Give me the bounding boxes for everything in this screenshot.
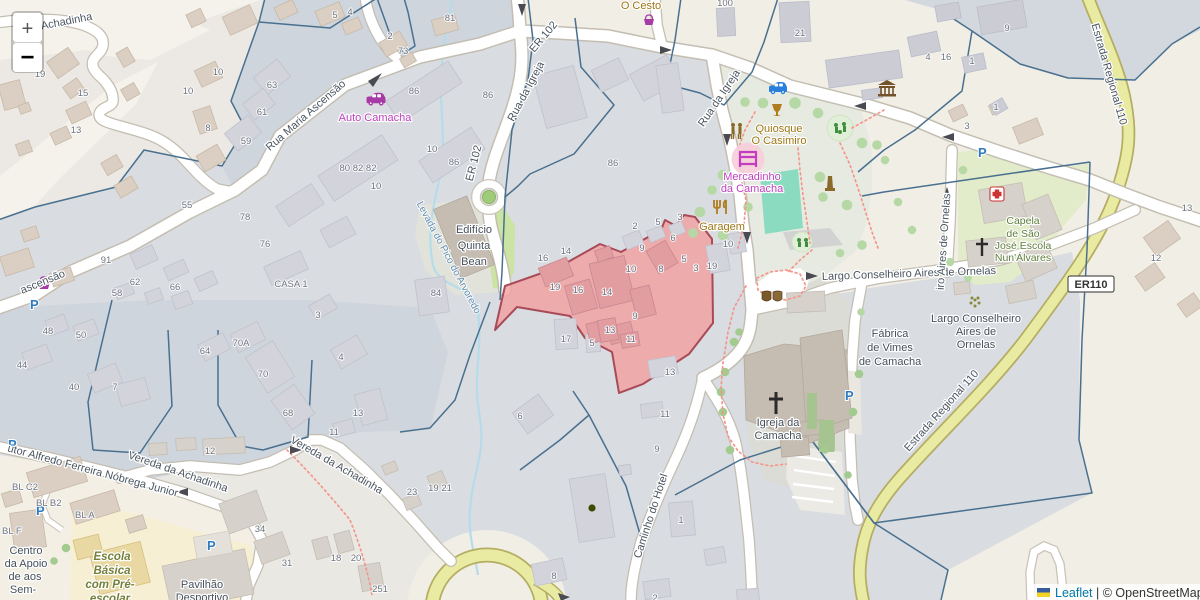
svg-text:76: 76 [260,239,271,250]
svg-text:3: 3 [677,212,682,223]
svg-text:com Pré-: com Pré- [85,579,134,591]
svg-text:8: 8 [551,571,556,582]
svg-text:P: P [978,145,987,160]
svg-text:70: 70 [258,369,269,380]
svg-text:BL B2: BL B2 [36,498,62,509]
svg-text:59: 59 [241,136,252,147]
svg-text:BL F: BL F [2,526,22,537]
svg-text:de São: de São [1006,228,1039,240]
svg-text:Leaflet: Leaflet [1055,586,1093,600]
svg-text:5: 5 [681,254,686,265]
svg-text:86: 86 [449,157,460,168]
svg-text:86: 86 [608,158,619,169]
svg-text:4: 4 [338,352,343,363]
svg-text:10: 10 [626,264,637,275]
svg-text:17: 17 [561,334,572,345]
svg-text:escolar: escolar [90,593,131,600]
svg-text:da Camacha: da Camacha [721,183,784,195]
svg-text:16: 16 [941,52,952,63]
svg-text:70A: 70A [233,338,251,349]
svg-text:O Casimiro: O Casimiro [751,135,806,147]
svg-text:18: 18 [331,553,342,564]
svg-text:ER110: ER110 [1074,279,1107,291]
svg-text:81: 81 [445,13,456,24]
svg-text:34: 34 [255,524,266,535]
svg-text:Fábrica: Fábrica [872,328,910,340]
svg-text:Nun'Álvares: Nun'Álvares [995,251,1051,264]
svg-text:15: 15 [78,88,89,99]
svg-text:Básica: Básica [93,565,131,577]
svg-text:Capela: Capela [1006,215,1039,227]
svg-text:5: 5 [589,338,594,349]
svg-text:11: 11 [660,409,670,420]
svg-text:1: 1 [993,102,998,113]
svg-text:1: 1 [678,515,683,526]
svg-text:Desportivo: Desportivo [176,592,229,600]
svg-text:66: 66 [170,282,181,293]
svg-text:−: − [20,44,34,71]
svg-text:86: 86 [409,86,420,97]
svg-text:23: 23 [407,487,418,498]
svg-text:100: 100 [717,0,733,9]
svg-text:CASA 1: CASA 1 [274,279,307,290]
svg-text:12: 12 [1151,253,1162,264]
svg-text:8: 8 [205,123,210,134]
svg-text:P: P [207,538,216,553]
svg-text:Bean: Bean [461,256,487,268]
svg-text:9: 9 [632,311,637,322]
svg-text:6: 6 [517,411,522,422]
svg-text:O Cesto: O Cesto [621,0,661,12]
svg-text:14: 14 [602,287,613,298]
svg-text:44: 44 [17,360,28,371]
svg-text:Sem-: Sem- [10,584,37,596]
svg-text:20: 20 [351,553,362,564]
svg-text:55: 55 [182,200,193,211]
svg-text:10: 10 [723,239,734,250]
svg-text:21: 21 [795,28,806,39]
svg-text:2: 2 [652,593,657,600]
svg-text:4: 4 [925,52,930,63]
svg-text:50: 50 [76,330,87,341]
svg-text:José Escola: José Escola [995,240,1052,252]
svg-text:9: 9 [1004,23,1009,34]
svg-text:10: 10 [427,144,438,155]
svg-text:4: 4 [347,7,352,18]
svg-text:de aos: de aos [8,571,42,583]
svg-text:86: 86 [483,90,494,101]
svg-text:3: 3 [693,263,698,274]
svg-text:63: 63 [267,80,278,91]
svg-text:73: 73 [398,46,409,57]
svg-text:| © OpenStreetMap: | © OpenStreetMap [1096,586,1200,600]
svg-text:10: 10 [371,181,382,192]
svg-text:P: P [30,297,39,312]
svg-text:13: 13 [1182,203,1193,214]
svg-text:16: 16 [538,253,549,264]
svg-text:2: 2 [387,31,392,42]
svg-text:Escola: Escola [93,551,131,563]
svg-text:5: 5 [332,10,337,21]
svg-text:14: 14 [561,246,572,257]
svg-text:de Vimes: de Vimes [867,342,913,354]
svg-text:9: 9 [654,444,659,455]
svg-text:1: 1 [969,56,974,67]
svg-text:Edifício: Edifício [456,224,492,236]
svg-text:13: 13 [665,367,676,378]
svg-text:7: 7 [112,382,117,393]
svg-text:+: + [22,18,34,40]
svg-text:Quiosque: Quiosque [755,123,802,135]
svg-text:2: 2 [632,221,637,232]
svg-text:13: 13 [71,125,82,136]
svg-text:19: 19 [707,261,718,272]
svg-text:Camacha: Camacha [754,430,802,442]
svg-text:10: 10 [183,86,194,97]
svg-text:31: 31 [282,558,293,569]
svg-text:12: 12 [205,446,216,457]
svg-text:13: 13 [353,408,364,419]
svg-text:78: 78 [240,212,251,223]
svg-text:58: 58 [112,288,123,299]
svg-text:68: 68 [283,408,294,419]
svg-text:19 21: 19 21 [428,483,452,494]
svg-text:Aires de: Aires de [956,326,996,338]
svg-text:3: 3 [315,310,320,321]
svg-text:61: 61 [257,107,268,118]
svg-text:Largo Conselheiro: Largo Conselheiro [931,313,1021,325]
svg-text:Mercadinho: Mercadinho [723,171,780,183]
svg-text:5: 5 [655,217,660,228]
svg-text:BL A: BL A [75,510,95,521]
svg-text:Ornelas: Ornelas [957,339,996,351]
svg-text:Auto Camacha: Auto Camacha [339,112,413,124]
svg-text:10: 10 [213,67,224,78]
svg-text:8: 8 [658,264,663,275]
svg-text:251: 251 [372,584,388,595]
svg-text:Garagem: Garagem [699,221,745,233]
svg-text:3: 3 [964,121,969,132]
svg-text:BL C2: BL C2 [12,482,38,493]
svg-text:16: 16 [573,285,584,296]
svg-text:da Apoio: da Apoio [5,558,48,570]
svg-text:91: 91 [101,255,112,266]
svg-text:Pavilhão: Pavilhão [181,579,223,591]
svg-text:Centro: Centro [9,545,42,557]
svg-text:62: 62 [130,277,141,288]
svg-text:64: 64 [200,346,211,357]
svg-text:de Camacha: de Camacha [859,356,922,368]
svg-text:19: 19 [550,282,561,293]
svg-text:Quinta: Quinta [458,240,491,252]
svg-text:9: 9 [639,243,644,254]
svg-text:11: 11 [626,334,636,345]
svg-text:13: 13 [605,325,616,336]
svg-text:80 82 82: 80 82 82 [340,163,377,174]
svg-text:P: P [845,388,854,403]
svg-text:6: 6 [670,233,675,244]
svg-text:Igreja da: Igreja da [757,417,801,429]
svg-text:11: 11 [329,427,339,438]
svg-text:48: 48 [43,326,54,337]
svg-text:40: 40 [69,382,80,393]
svg-text:84: 84 [431,288,442,299]
